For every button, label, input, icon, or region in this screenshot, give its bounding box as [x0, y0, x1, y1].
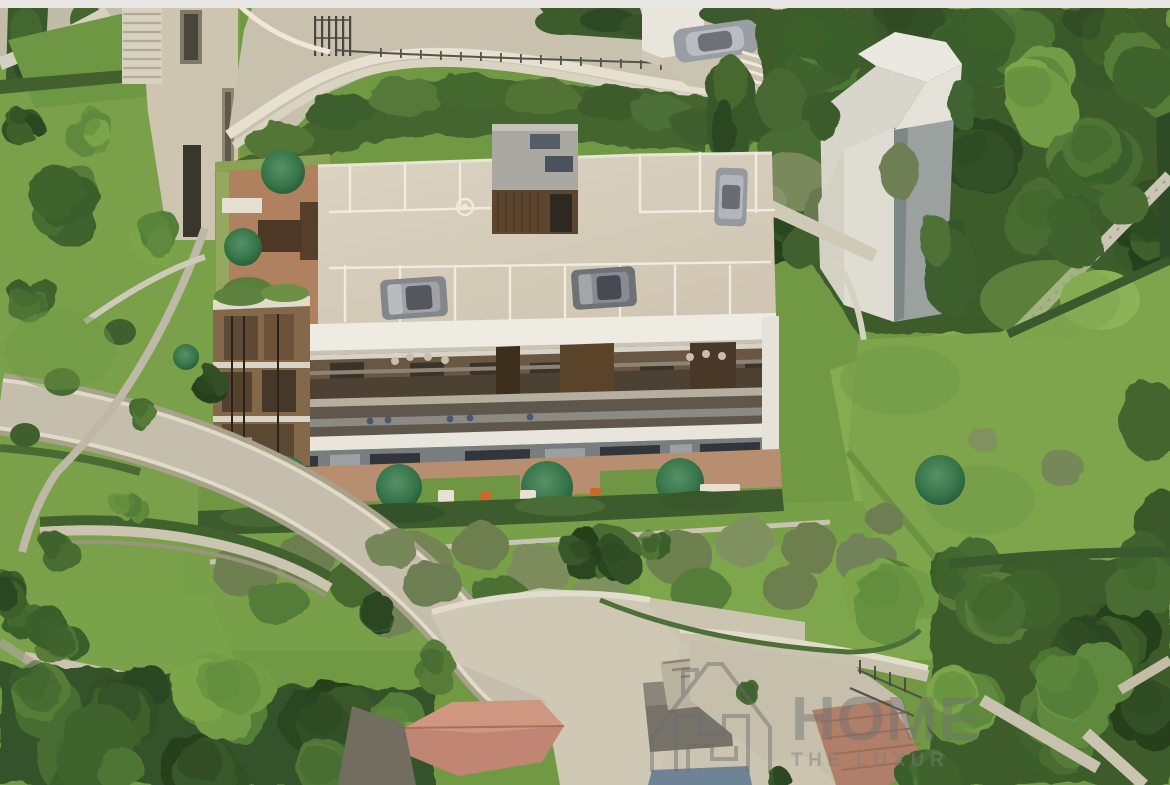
svg-text:THE LUXUR: THE LUXUR	[791, 750, 949, 771]
svg-text:HOME: HOME	[791, 685, 981, 754]
